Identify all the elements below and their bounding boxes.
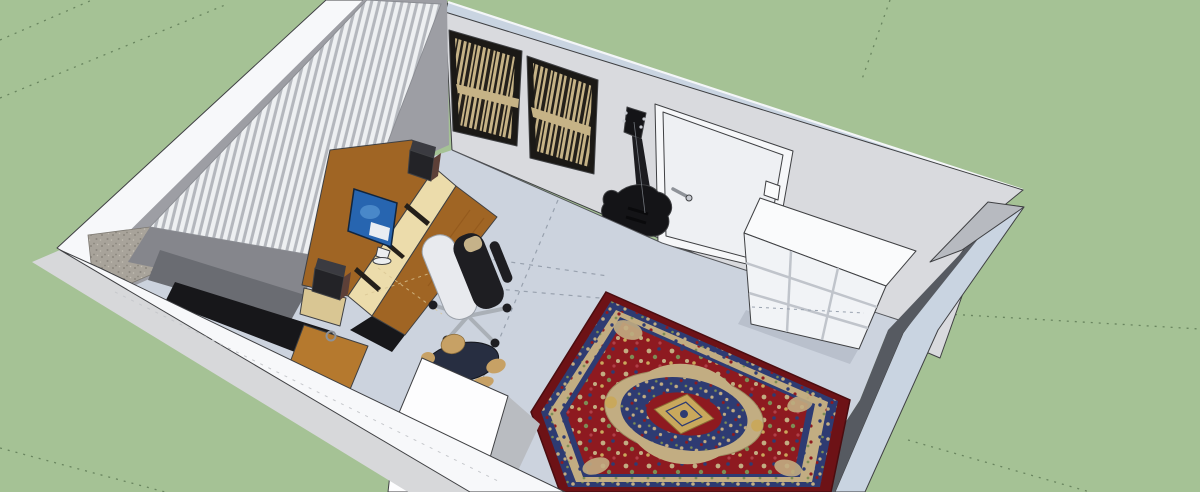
scene-canvas[interactable] [0, 0, 1200, 492]
door-handle-base [686, 195, 692, 201]
chair-caster [503, 304, 512, 313]
chair-caster [491, 339, 500, 348]
guitar-tuner [624, 111, 627, 114]
model-viewport[interactable] [0, 0, 1200, 492]
chair-caster [429, 301, 438, 310]
monitor-base [373, 258, 391, 265]
guitar-tuner [642, 117, 645, 120]
acoustic-panel-left[interactable] [449, 30, 522, 146]
guitar-tuner [622, 119, 625, 122]
guitar-tuner [639, 125, 642, 128]
screen-glow [360, 205, 380, 219]
